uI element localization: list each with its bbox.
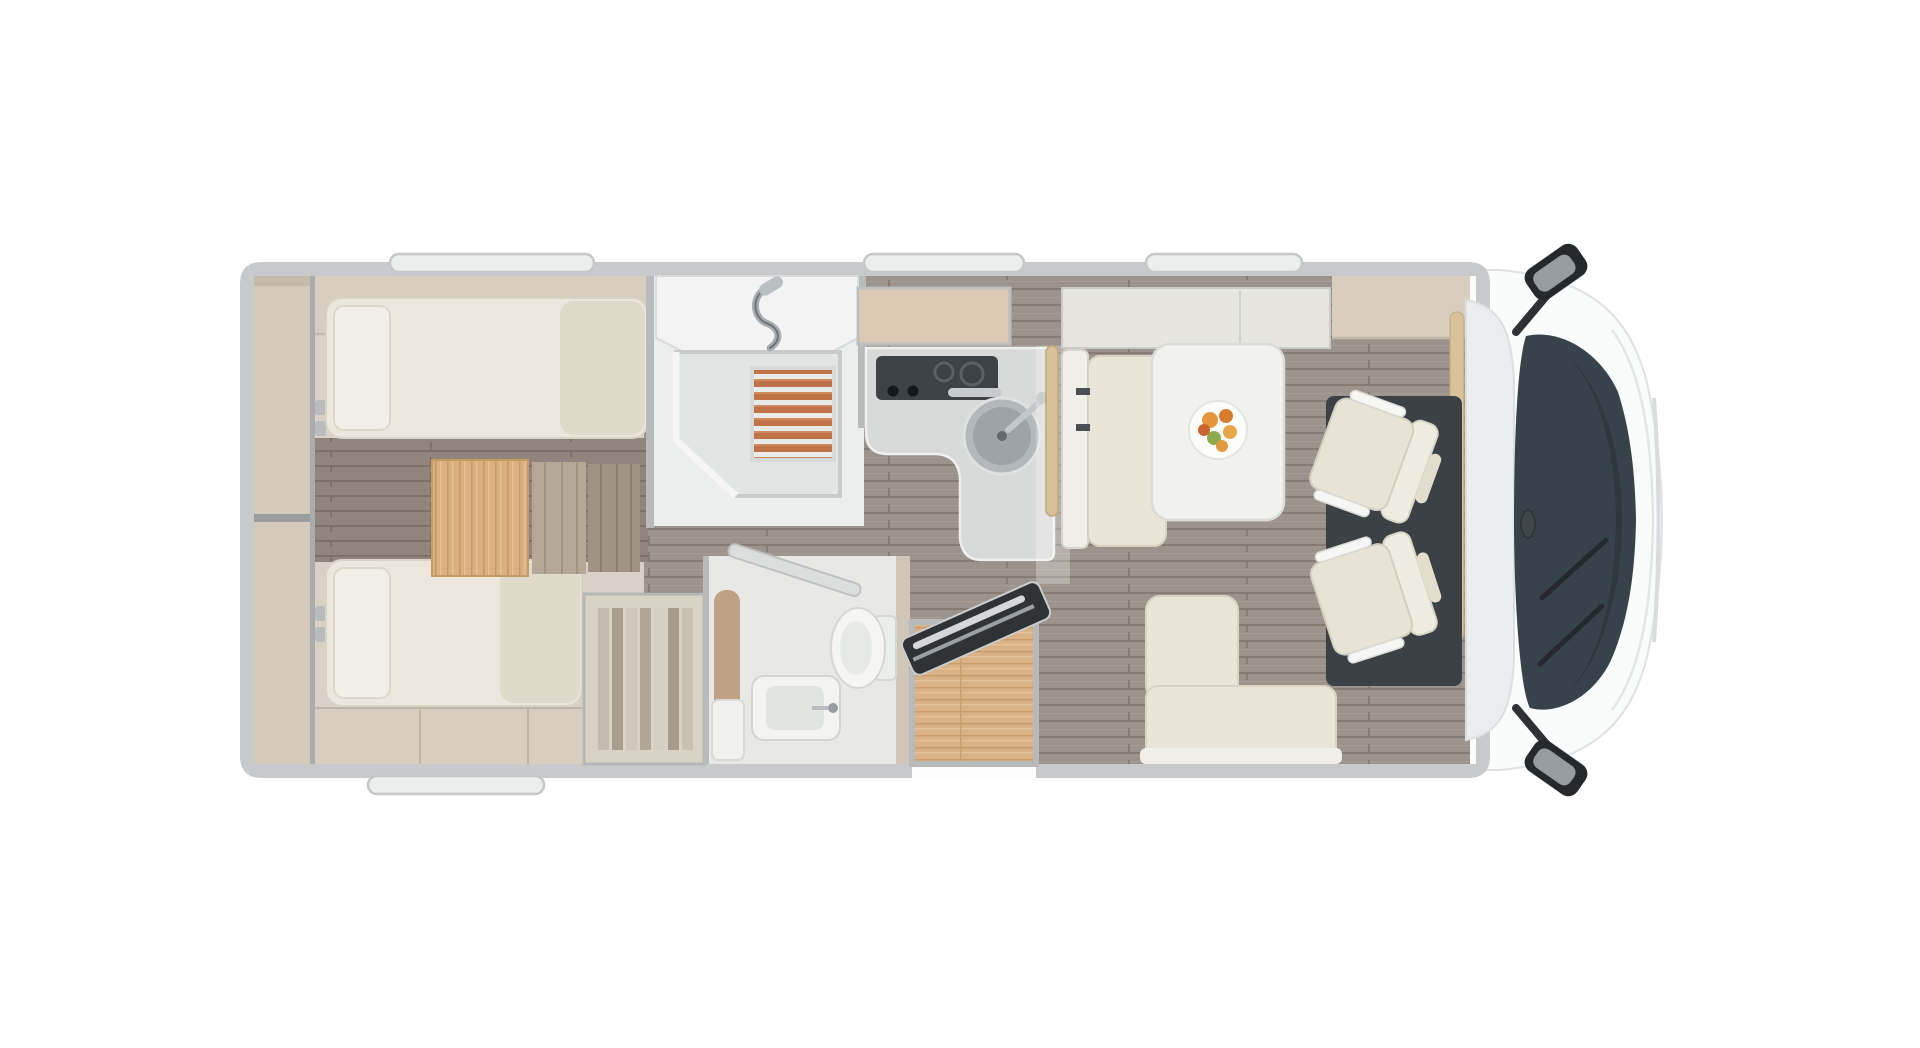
basin-tap <box>828 703 838 713</box>
pillow-upper <box>334 306 390 430</box>
overcab-shelf <box>1332 276 1470 338</box>
rear-garage-storage <box>254 276 315 764</box>
wardrobe-hanging-clothes <box>584 594 704 764</box>
travel-bench <box>1062 350 1166 548</box>
mattress-foot-shade-2 <box>500 563 580 703</box>
fruit-plate <box>1189 401 1247 459</box>
bed-step-2 <box>588 464 640 572</box>
kitchen-hob <box>876 356 1002 400</box>
window-bedroom-bottom <box>368 776 544 794</box>
dashboard <box>1466 300 1514 740</box>
kitchen-window <box>858 288 1010 344</box>
grab-rail <box>1046 346 1058 516</box>
rear-storage-shelf-divider <box>254 514 312 522</box>
doorway-gap <box>912 766 1036 780</box>
bedroom-rear-wall <box>310 276 315 764</box>
lounge-backrest <box>1140 748 1342 764</box>
floorplan-svg: Motorhome floor plan - top view <box>0 0 1920 1048</box>
window-dinette <box>1146 254 1302 272</box>
teak-grating <box>752 368 834 460</box>
twin-bed-lower <box>326 560 582 706</box>
window-kitchen <box>864 254 1024 272</box>
twin-bed-upper <box>326 298 648 438</box>
shower-left-wall <box>646 276 654 528</box>
oak-dresser <box>432 460 528 576</box>
mattress-foot-shade <box>560 301 645 435</box>
washroom-cabinet <box>712 700 744 760</box>
sideboard <box>1062 288 1330 348</box>
oven-handle <box>948 388 1002 397</box>
toilet <box>831 608 896 688</box>
brand-badge <box>1521 510 1535 538</box>
pillow-lower <box>334 568 390 698</box>
window-bedroom <box>390 254 594 272</box>
shower-room <box>646 274 866 528</box>
rear-storage-shadow <box>254 276 312 286</box>
hanging-clothes <box>598 608 693 750</box>
overhead-locker-bottom <box>315 708 615 764</box>
washroom <box>703 556 910 764</box>
dining-table <box>1152 344 1284 520</box>
washbasin <box>752 676 840 740</box>
motorhome-floorplan-canvas: Motorhome floor plan - top view <box>0 0 1920 1048</box>
washroom-left-wall <box>703 556 709 764</box>
